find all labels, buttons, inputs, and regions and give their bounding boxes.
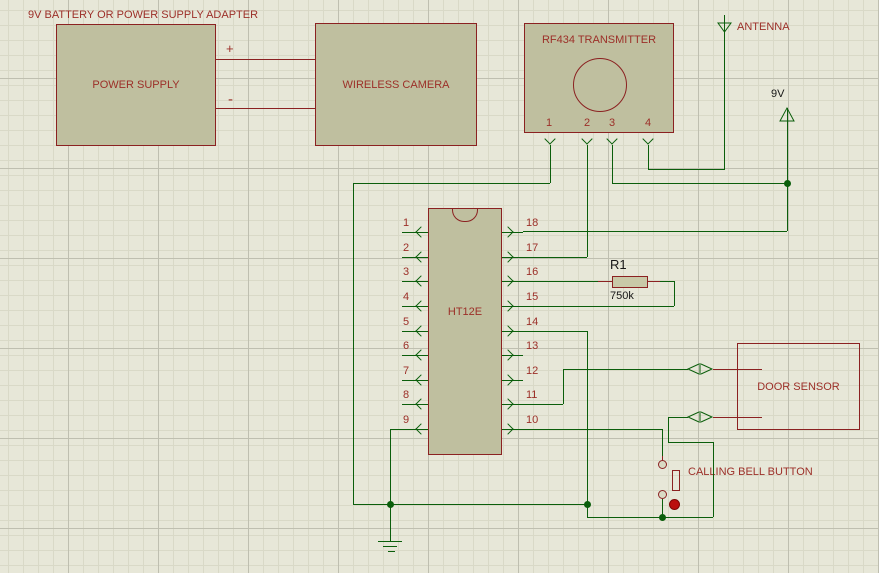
wire-pin9-down (390, 429, 391, 504)
pin12-label: 12 (526, 366, 538, 377)
wireless-camera-block[interactable]: WIRELESS CAMERA (315, 23, 477, 146)
rf434-label: RF434 TRANSMITTER (524, 34, 674, 46)
wireless-camera-label: WIRELESS CAMERA (343, 79, 450, 91)
wire-ground-stem (390, 504, 391, 541)
pin3-arrow-icon (415, 275, 426, 286)
pin8-arrow-icon (415, 398, 426, 409)
junction-dot-button (659, 514, 666, 521)
rf-pin-4-label: 4 (642, 118, 654, 129)
rf-pin-3-arrow-icon (606, 133, 617, 144)
wire-rf-pin2-drop (587, 145, 588, 257)
bell-button-actuator[interactable] (672, 470, 680, 491)
wire-door-sensor-bottom (713, 417, 762, 418)
wire-supply-minus (216, 108, 315, 109)
rf-pin-2-label: 2 (581, 118, 593, 129)
pin5-arrow-icon (415, 325, 426, 336)
pin17-label: 17 (526, 243, 538, 254)
wire-r1-down (674, 281, 675, 306)
junction-dot-ground (387, 501, 394, 508)
wire-r1-lead-right (648, 281, 660, 282)
pin10-arrow-icon (502, 423, 513, 434)
pin18-label: 18 (526, 218, 538, 229)
wire-r1-to-corner (660, 281, 674, 282)
rf434-circle (573, 58, 627, 112)
wire-rf-pin1-left (353, 183, 550, 184)
wire-door-sensor-top (713, 369, 762, 370)
bell-button-bottom-contact[interactable] (658, 490, 667, 499)
wire-r1-lead-left (598, 281, 612, 282)
wire-ground-rail-right (587, 517, 713, 518)
wire-rf-pin1-drop (550, 145, 551, 183)
wire-antenna-to-rf-pin4 (648, 169, 725, 170)
pin11-label: 11 (526, 390, 537, 401)
door-sensor-label: DOOR SENSOR (757, 381, 840, 393)
pin16-label: 16 (526, 267, 538, 278)
resistor-r1-body[interactable] (612, 276, 648, 288)
wire-pin10-right (523, 429, 662, 430)
ht12e-label: HT12E (428, 306, 502, 318)
calling-bell-label: CALLING BELL BUTTON (688, 466, 813, 478)
schematic-title: 9V BATTERY OR POWER SUPPLY ADAPTER (28, 9, 258, 21)
wire-supply-plus (216, 59, 315, 60)
pin13-arrow-icon (502, 349, 513, 360)
pin14-label: 14 (526, 317, 538, 328)
power-terminal-9v-label: 9V (771, 88, 784, 100)
pin2-arrow-icon (415, 251, 426, 262)
junction-dot-9v (784, 180, 791, 187)
wire-rf-pin3-to-9v (612, 183, 787, 184)
resistor-ref-label: R1 (610, 259, 627, 271)
wire-rf-pin3-drop (612, 145, 613, 183)
wire-button-top-stub (662, 456, 663, 461)
rf-pin-1-arrow-icon (544, 133, 555, 144)
wire-terminal-up (668, 417, 669, 442)
pin9-arrow-icon (415, 423, 426, 434)
pin15-label: 15 (526, 292, 538, 303)
rf-pin-1-label: 1 (543, 118, 555, 129)
wire-pin10-to-button (662, 429, 663, 456)
ht12e-ic[interactable] (428, 208, 502, 455)
pin5-label: 5 (403, 317, 409, 328)
wire-rf-pin4-drop (648, 145, 649, 169)
pin6-label: 6 (403, 341, 409, 352)
pin7-label: 7 (403, 366, 409, 377)
wire-into-bottom-terminal (668, 417, 688, 418)
schematic-canvas: 9V BATTERY OR POWER SUPPLY ADAPTER POWER… (0, 0, 879, 573)
pin1-arrow-icon (415, 226, 426, 237)
antenna-icon[interactable] (717, 22, 733, 34)
pin13-label: 13 (526, 341, 538, 352)
wire-9v-vertical (787, 108, 788, 231)
pin4-label: 4 (403, 292, 409, 303)
wire-pin14-down (587, 331, 588, 517)
pin18-arrow-icon (502, 226, 513, 237)
wire-pin15-to-r1 (523, 306, 674, 307)
power-supply-block[interactable]: POWER SUPPLY (56, 24, 216, 146)
pin14-arrow-icon (502, 325, 513, 336)
door-sensor-top-terminal-icon[interactable] (687, 362, 713, 376)
wire-pin11-jog (563, 369, 564, 404)
plus-terminal-label: + (226, 43, 234, 55)
pin7-arrow-icon (415, 374, 426, 385)
pin12-arrow-icon (502, 374, 513, 385)
pin15-arrow-icon (502, 300, 513, 311)
rf-pin-2-arrow-icon (581, 133, 592, 144)
pin8-label: 8 (403, 390, 409, 401)
rf-pin-4-arrow-icon (642, 133, 653, 144)
pin16-arrow-icon (502, 275, 513, 286)
bell-button-top-contact[interactable] (658, 460, 667, 469)
wire-pin16-to-r1 (523, 281, 598, 282)
wire-terminal-link (668, 442, 713, 443)
wire-terminal-riser (713, 442, 714, 517)
wire-pin11-right (523, 404, 563, 405)
pin1-label: 1 (403, 218, 409, 229)
pin11-arrow-icon (502, 398, 513, 409)
wire-pin18-to-9v (523, 231, 787, 232)
power-supply-label: POWER SUPPLY (92, 79, 179, 91)
antenna-label: ANTENNA (737, 21, 790, 33)
door-sensor-bottom-terminal-icon[interactable] (687, 410, 713, 424)
pin17-arrow-icon (502, 251, 513, 262)
pin2-label: 2 (403, 243, 409, 254)
pin4-arrow-icon (415, 300, 426, 311)
pin6-arrow-icon (415, 349, 426, 360)
wire-pin11-to-terminal (563, 369, 688, 370)
wire-pin17-to-rf-pin2 (523, 257, 587, 258)
pin9-label: 9 (403, 415, 409, 426)
junction-dot-rail (584, 501, 591, 508)
wire-pin14-right (523, 331, 587, 332)
bell-button-toggle-dot[interactable] (669, 499, 680, 510)
wire-antenna-vertical (724, 15, 725, 169)
pin10-label: 10 (526, 415, 538, 426)
minus-terminal-label: - (228, 94, 233, 106)
wire-left-vertical-to-ground (353, 183, 354, 504)
rf-pin-3-label: 3 (606, 118, 618, 129)
pin3-label: 3 (403, 267, 409, 278)
resistor-value-label: 750k (610, 290, 634, 302)
